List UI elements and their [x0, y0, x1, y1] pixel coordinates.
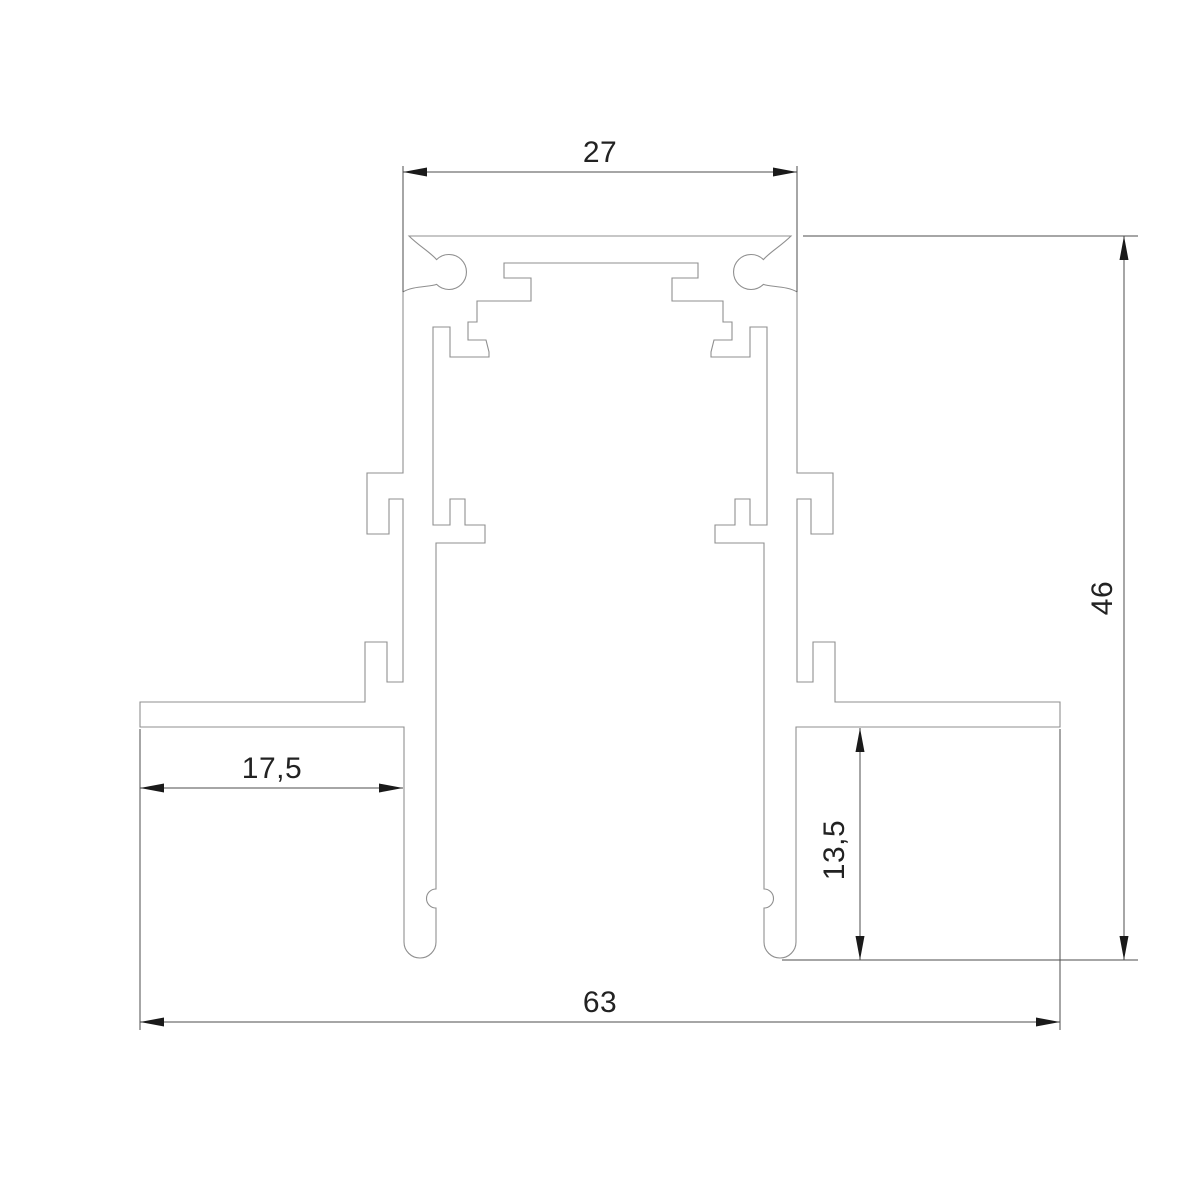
dim-overall-height-label: 46	[1086, 581, 1119, 615]
dim-leg-depth-arrow-bottom	[856, 936, 865, 960]
dim-top-width-label: 27	[583, 136, 617, 169]
dim-overall-width-label: 63	[583, 986, 617, 1019]
dim-overall-height: 46	[1086, 236, 1129, 960]
dim-flange-width-arrow-right	[379, 784, 403, 793]
dim-leg-depth: 13,5	[818, 728, 865, 960]
dim-overall-width-arrow-left	[140, 1018, 164, 1027]
dim-leg-depth-arrow-top	[856, 728, 865, 752]
dim-top-width-arrow-left	[403, 168, 427, 177]
dim-overall-height-arrow-top	[1120, 236, 1129, 260]
profile-cross-section-drawing: 27 46 17,5 13,5 63	[0, 0, 1200, 1200]
dim-top-width-arrow-right	[773, 168, 797, 177]
dim-flange-width-label: 17,5	[242, 752, 302, 785]
dim-leg-depth-label: 13,5	[818, 820, 851, 880]
dim-overall-height-arrow-bottom	[1120, 936, 1129, 960]
dim-overall-width-arrow-right	[1036, 1018, 1060, 1027]
dim-flange-width-arrow-left	[140, 784, 164, 793]
dim-flange-width: 17,5	[140, 752, 403, 793]
dim-overall-width: 63	[140, 986, 1060, 1027]
dim-top-width: 27	[403, 136, 797, 177]
profile-outline	[140, 236, 1060, 958]
technical-drawing-canvas: 27 46 17,5 13,5 63	[0, 0, 1200, 1200]
